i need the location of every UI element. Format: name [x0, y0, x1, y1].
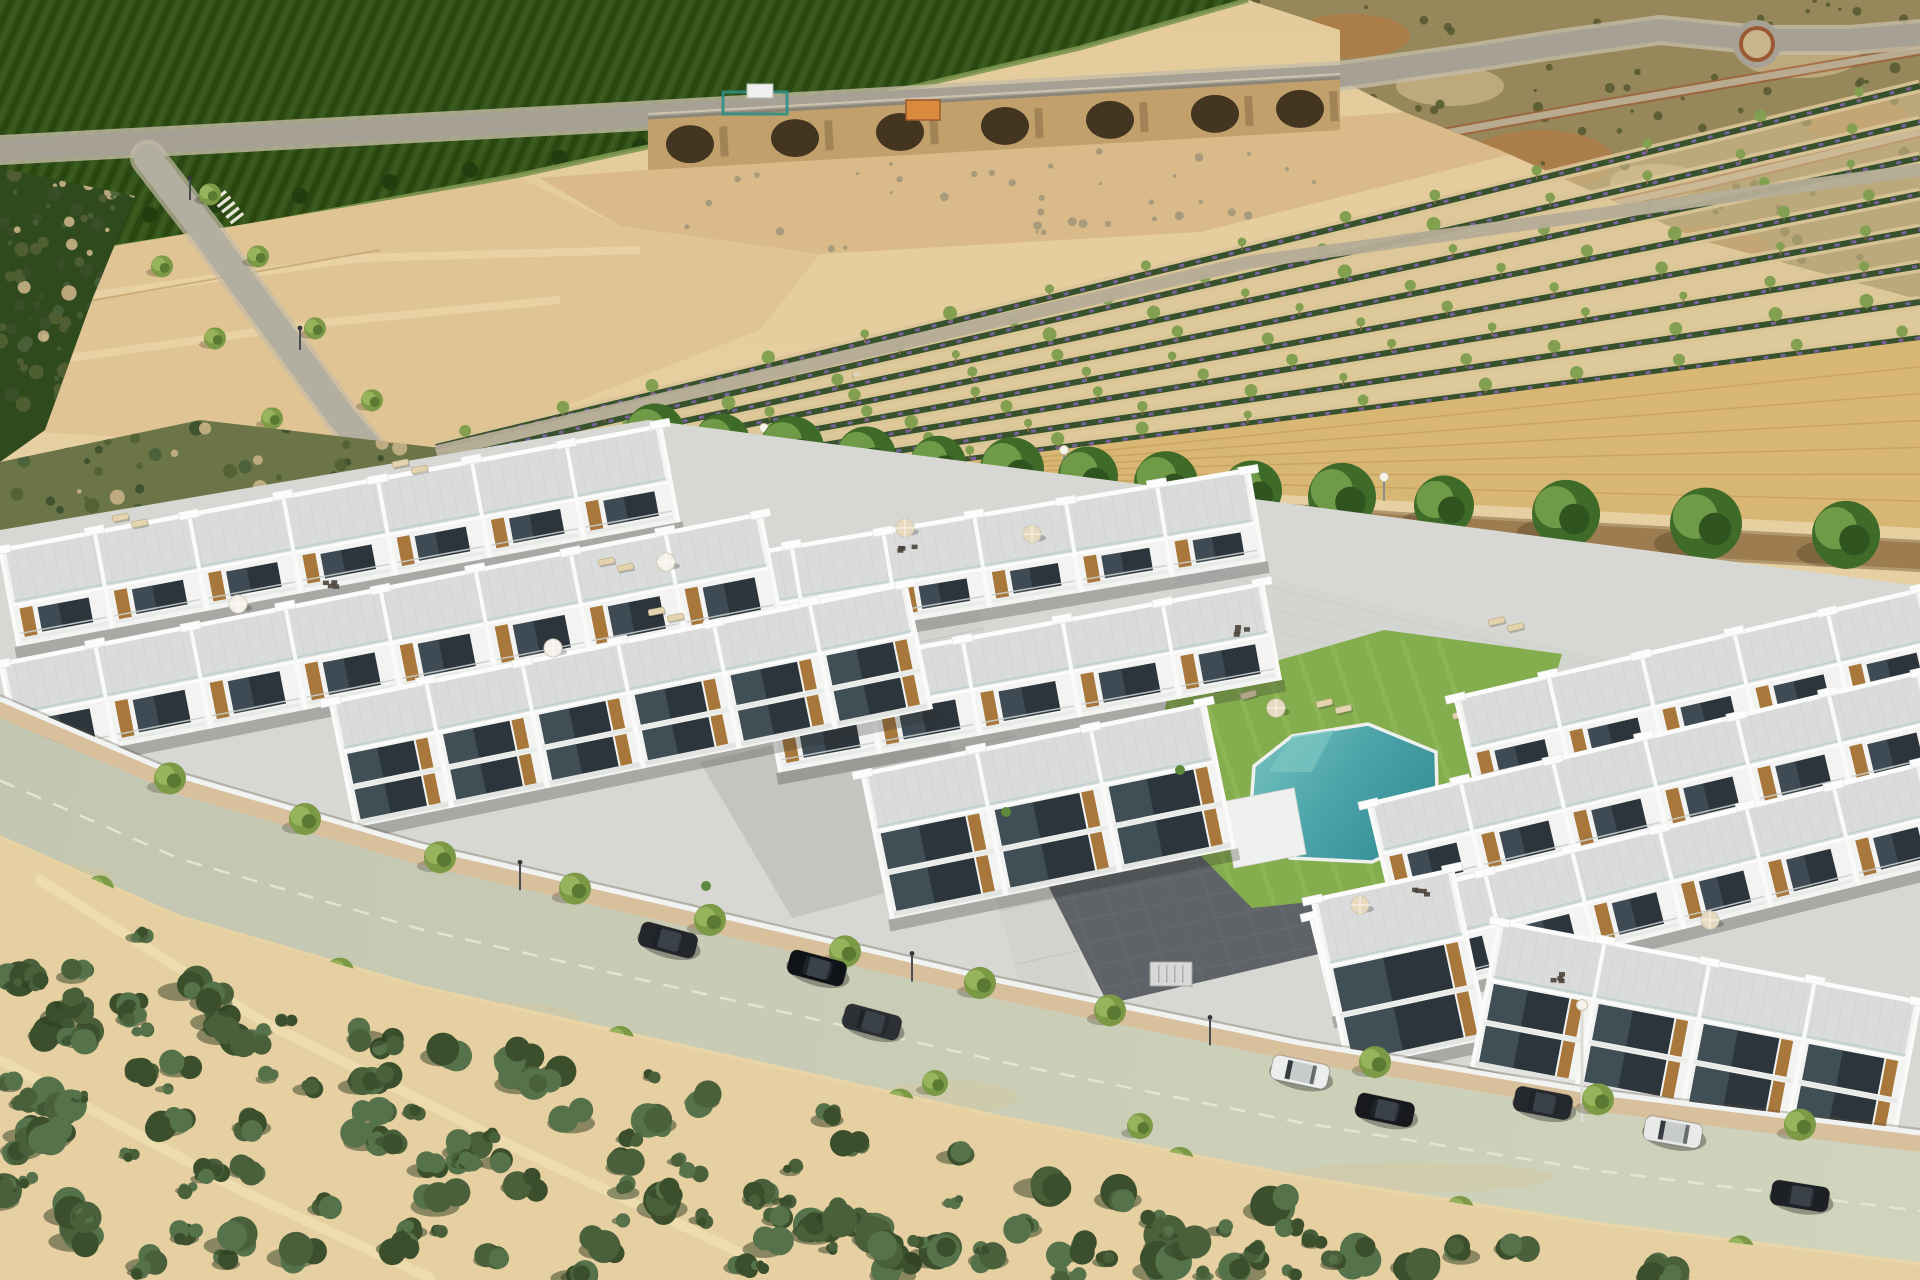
roundabout	[1733, 20, 1781, 68]
aerial-render-canvas	[0, 0, 1920, 1280]
aerial-photo-residential-complex	[0, 0, 1920, 1280]
